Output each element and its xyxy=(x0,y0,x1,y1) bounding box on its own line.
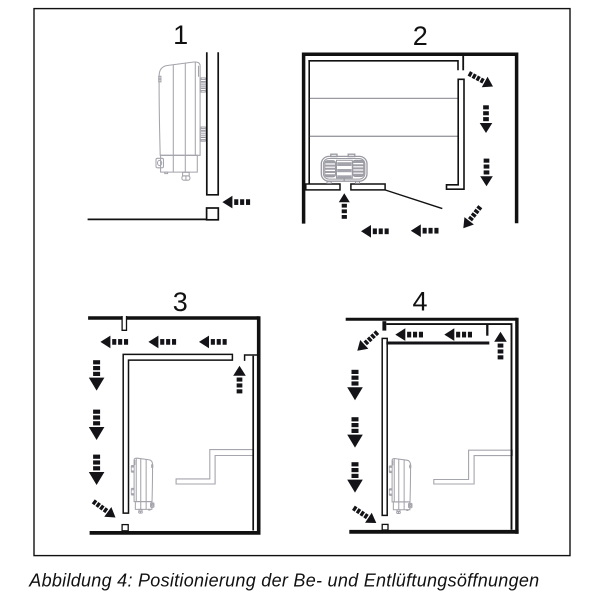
svg-text:4: 4 xyxy=(412,286,427,316)
svg-text:2: 2 xyxy=(413,21,428,51)
svg-text:1: 1 xyxy=(173,20,188,50)
svg-text:Abbildung 4: Positionierung de: Abbildung 4: Positionierung der Be- und … xyxy=(28,571,539,591)
svg-text:3: 3 xyxy=(173,287,188,317)
